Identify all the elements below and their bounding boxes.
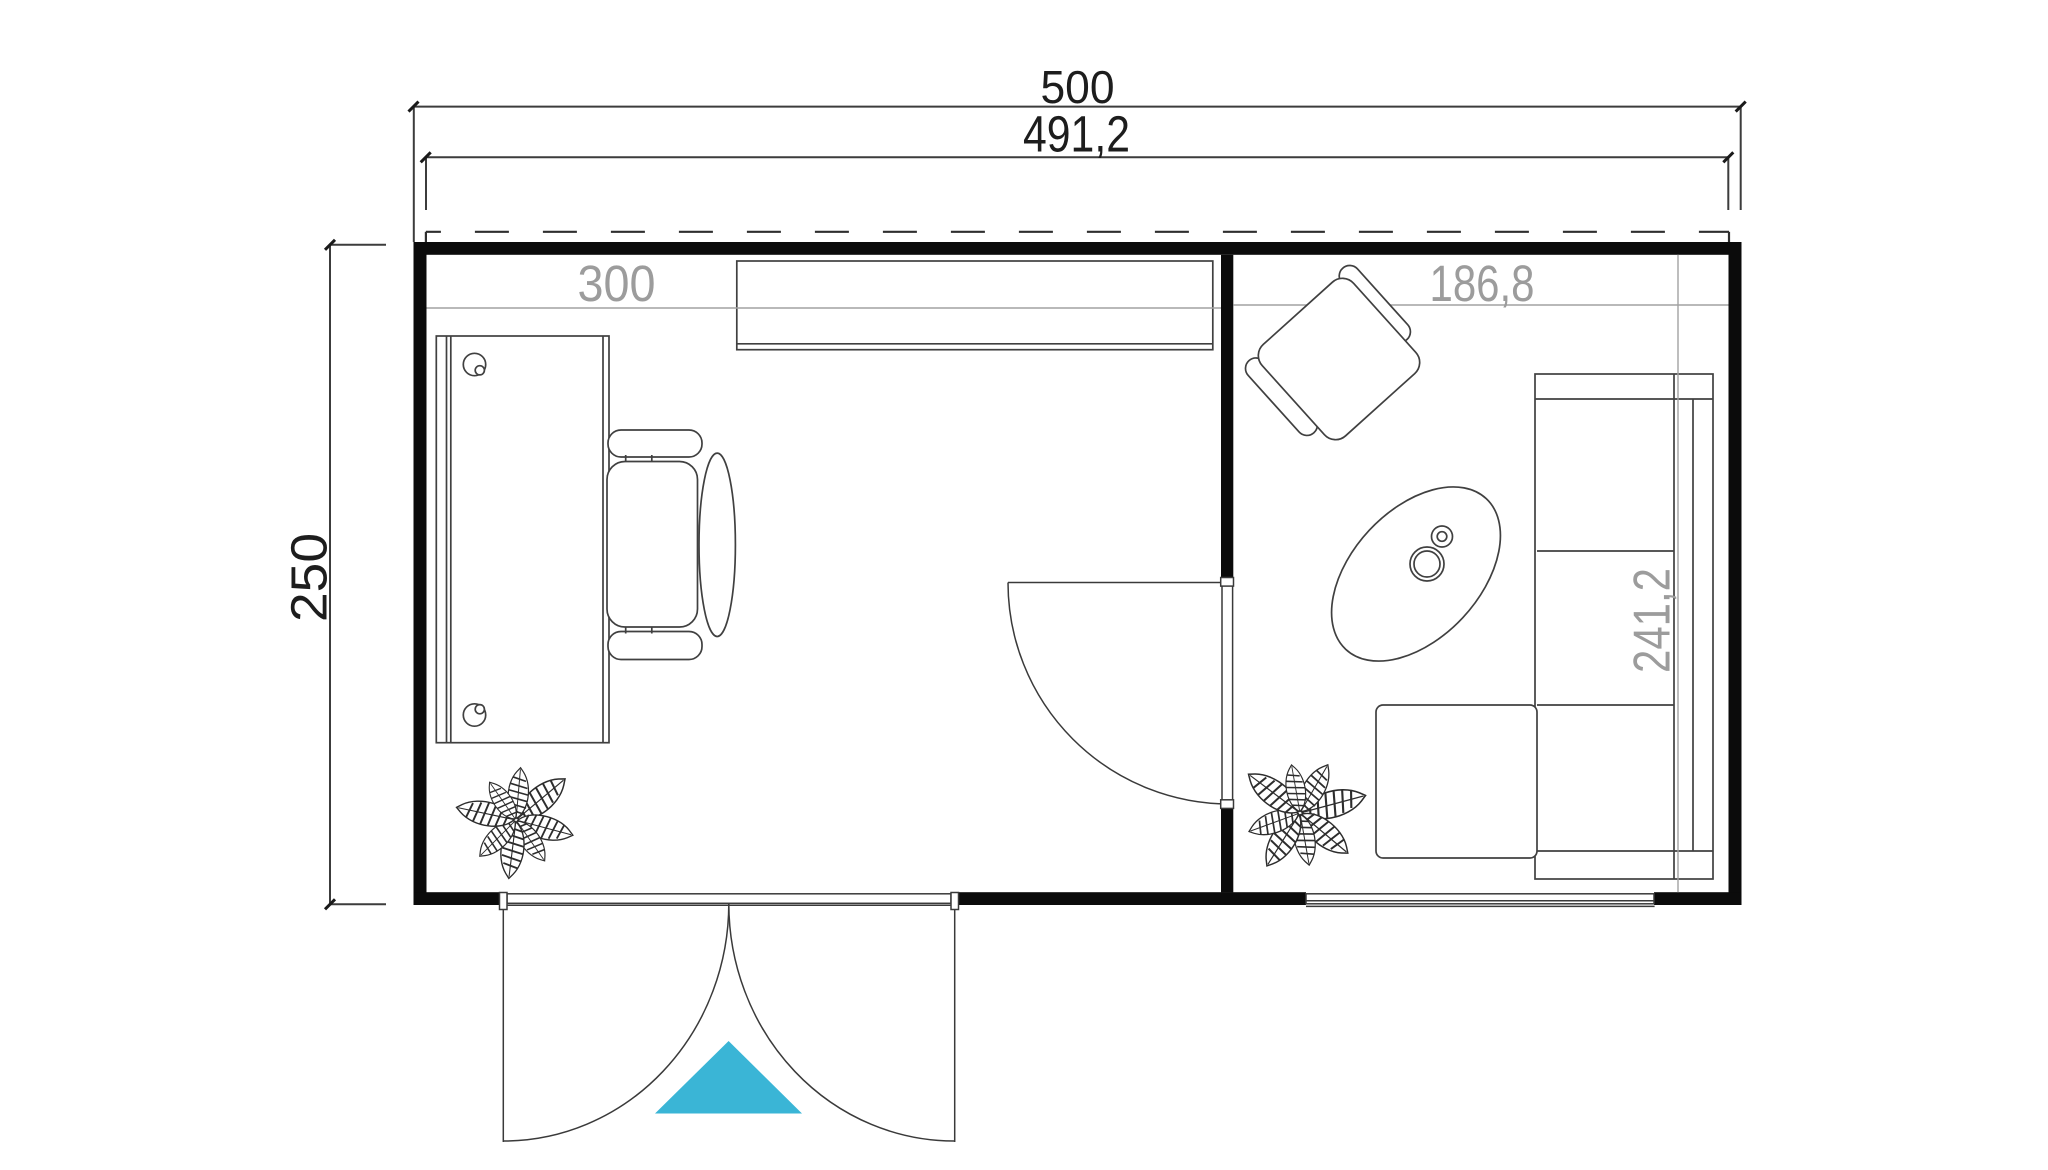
- svg-text:250: 250: [281, 533, 338, 622]
- svg-text:300: 300: [578, 255, 656, 312]
- svg-text:186,8: 186,8: [1430, 255, 1535, 312]
- svg-text:241,2: 241,2: [1624, 568, 1682, 673]
- svg-text:491,2: 491,2: [1023, 106, 1130, 163]
